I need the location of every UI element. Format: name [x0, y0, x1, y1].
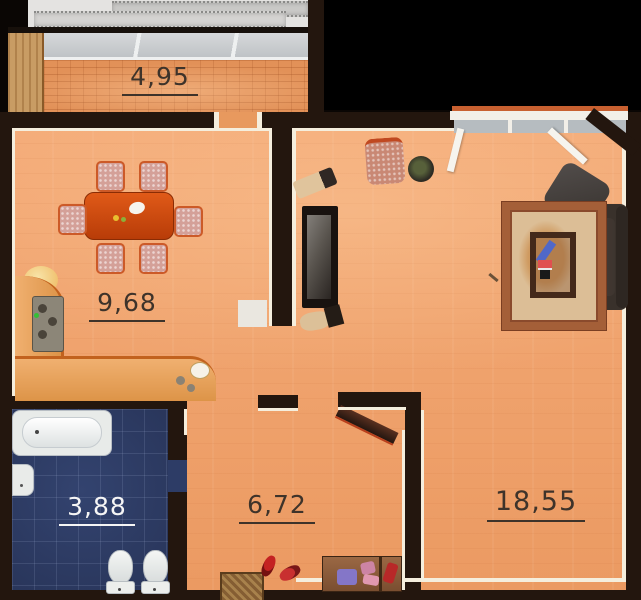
stub-trim	[258, 408, 298, 411]
dining-chair	[139, 161, 168, 192]
living-trim	[622, 134, 626, 580]
dining-chair	[58, 204, 87, 235]
living-trim	[421, 410, 424, 580]
shoe-icon	[362, 574, 379, 587]
shoe-icon	[337, 569, 357, 585]
hallway-wall-stub-right	[338, 392, 406, 407]
food-icon	[113, 215, 119, 221]
kitchen-trim	[269, 128, 272, 326]
bathroom-area-label: 3,88	[42, 492, 152, 526]
hallway-area-label: 6,72	[222, 490, 332, 524]
drain-icon	[35, 430, 39, 434]
balcony-right-wall	[308, 0, 324, 112]
hallway-living-divider-wall	[405, 392, 421, 600]
food-icon	[121, 217, 126, 222]
balcony-separator-wall	[8, 112, 310, 128]
rack-divider	[379, 557, 382, 591]
wardrobe-tv-unit	[302, 206, 338, 308]
left-wall	[0, 112, 12, 600]
tv-screen-icon	[307, 215, 331, 299]
balcony-railing-icon	[34, 11, 286, 28]
burner-icon	[38, 330, 47, 339]
living-window	[448, 104, 630, 174]
balcony-door-leaf-icon	[447, 128, 464, 172]
bottom-wall	[0, 590, 641, 600]
plant-pot-icon	[408, 156, 434, 182]
burner-icon	[38, 304, 47, 313]
living-trim	[296, 128, 454, 131]
kitchen-sink-icon	[190, 362, 210, 379]
kitchen-counter-bottom	[15, 356, 216, 401]
window-mullion	[564, 120, 568, 133]
remote-icon	[540, 270, 550, 279]
living-trim	[292, 128, 296, 326]
right-wall	[626, 112, 641, 600]
hallway-wall-stub-left	[258, 395, 298, 408]
bathroom-door-opening	[168, 460, 187, 492]
hallway-trim	[402, 430, 405, 590]
magazine-icon	[538, 260, 552, 268]
living-area-value: 18,55	[487, 486, 585, 522]
living-top-wall	[285, 112, 460, 128]
toilet-icon	[141, 550, 169, 594]
coffee-table	[530, 232, 576, 298]
rug	[502, 202, 606, 330]
kitchen-area-value: 9,68	[89, 288, 165, 322]
toilet-button	[153, 588, 156, 591]
doormat	[220, 572, 264, 600]
shoe-rack	[322, 556, 402, 592]
dining-chair	[96, 243, 125, 274]
apartment-floor-plan: 4,95 9,68 3,88 6,72 18,55	[0, 0, 641, 600]
stove-icon	[32, 296, 64, 352]
toilet-button	[118, 588, 121, 591]
toilet-icon	[106, 550, 134, 594]
knob-icon	[176, 376, 185, 385]
stub-trim	[338, 407, 406, 410]
dining-chair	[96, 161, 125, 192]
kitchen-trim	[12, 128, 270, 131]
toilet-bowl	[143, 550, 168, 584]
door-jamb	[214, 112, 219, 128]
hallway-area-value: 6,72	[239, 490, 315, 524]
knob-icon	[187, 384, 195, 392]
toilet-bowl	[108, 550, 133, 584]
window-mullion	[508, 120, 512, 133]
armchair	[364, 137, 405, 186]
dining-table	[84, 192, 174, 240]
void-area	[322, 0, 641, 110]
burner-icon	[48, 317, 57, 326]
balcony-glazing	[44, 33, 310, 60]
shoe-icon	[360, 561, 376, 576]
sofa-back	[616, 206, 628, 308]
bathroom-area-value: 3,88	[59, 492, 135, 526]
living-area-label: 18,55	[476, 486, 596, 522]
dining-chair	[174, 206, 203, 237]
balcony-area-label: 4,95	[105, 62, 215, 96]
balcony-area-value: 4,95	[122, 62, 198, 96]
plate-icon	[128, 200, 147, 216]
bathtub-basin	[22, 417, 102, 448]
balcony-door-opening	[218, 112, 258, 128]
door-jamb	[257, 112, 262, 128]
drain-icon	[20, 484, 23, 487]
bathtub	[12, 410, 112, 456]
kitchen-area-label: 9,68	[72, 288, 182, 322]
bathroom-sink-icon	[12, 464, 34, 496]
hallway-trim	[184, 409, 187, 435]
dining-chair	[139, 243, 168, 274]
shoe-icon	[382, 562, 399, 584]
indicator-light-icon	[34, 313, 39, 318]
white-patch	[238, 300, 267, 327]
balcony-wood-wall	[8, 33, 44, 112]
